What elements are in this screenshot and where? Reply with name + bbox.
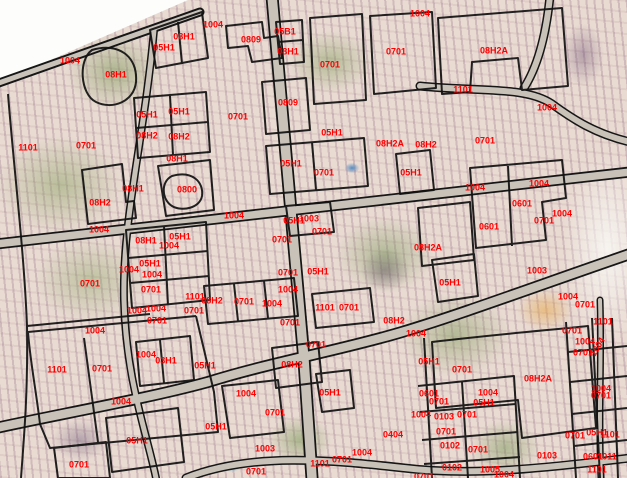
parcel-label: 1101 — [600, 431, 620, 440]
parcel-label: 0701 — [278, 269, 298, 278]
map-canvas[interactable]: 100408H105H108H105H105H108H208H211010701… — [0, 0, 627, 478]
parcel-label: 1004 — [494, 471, 514, 478]
parcel-label: 0701 — [312, 228, 332, 237]
parcel-label: 0102 — [442, 464, 462, 473]
parcel-label: 0701 — [147, 317, 167, 326]
parcel-label: 0809 — [278, 99, 298, 108]
parcel-label: 03H1 — [155, 357, 177, 366]
parcel-label: 1004 — [111, 398, 131, 407]
parcel-label: 05H1 — [126, 437, 148, 446]
parcel-label: 0701 — [429, 398, 449, 407]
parcel-label: 05H1 — [280, 160, 302, 169]
parcel-label: 08H1 — [105, 71, 127, 80]
parcel-label: 1004 — [203, 21, 223, 30]
parcel-label: 0102 — [440, 442, 460, 451]
parcel-label: 1004 — [410, 10, 430, 19]
parcel-label: 1101 — [47, 366, 67, 375]
parcel-label: 0701 — [565, 432, 585, 441]
parcel-label: 0701 — [320, 61, 340, 70]
parcel-label: 1004 — [142, 271, 162, 280]
parcel-label: 0103 — [537, 452, 557, 461]
parcel-label: 0701 — [306, 341, 326, 350]
parcel-label: 1004 — [60, 57, 80, 66]
parcel-label: 0701 — [265, 409, 285, 418]
parcel-label: 1011 — [597, 453, 617, 462]
parcel-label: 0701 — [272, 236, 292, 245]
parcel-label: 0601 — [479, 223, 499, 232]
parcel-label: 0701 — [332, 456, 352, 465]
parcel-label: 0701 — [69, 461, 89, 470]
parcel-label: 1004 — [224, 212, 244, 221]
parcel-label: 0701 — [76, 142, 96, 151]
parcel-label: 1004 — [478, 389, 498, 398]
parcel-label: 0701 — [80, 280, 100, 289]
parcel-label: 08H1 — [166, 155, 188, 164]
parcel-label: 0809 — [241, 36, 261, 45]
parcel-label: 0701 — [575, 301, 595, 310]
parcel-label: 1004 — [537, 104, 557, 113]
parcel-label: 05H1 — [418, 358, 440, 367]
parcel-label: 1004 — [552, 210, 572, 219]
parcel-label: 08H2A — [480, 47, 508, 56]
parcel-label: 05H1 — [136, 111, 158, 120]
parcel-label: 0103 — [434, 413, 454, 422]
parcel-label: 0701 — [228, 113, 248, 122]
parcel-label: 0701 — [475, 137, 495, 146]
parcel-label: 05H1 — [400, 169, 422, 178]
parcel-label: 08H2A — [376, 140, 404, 149]
parcel-label: 0701 — [414, 473, 434, 478]
parcel-label: 08H2A — [524, 375, 552, 384]
parcel-label: 1003 — [255, 445, 275, 454]
parcel-labels-layer: 100408H105H108H105H105H108H208H211010701… — [0, 0, 627, 478]
parcel-label: 1004 — [85, 327, 105, 336]
parcel-label: 0701 — [314, 169, 334, 178]
parcel-label: 1004 — [529, 180, 549, 189]
parcel-label: 05H1 — [439, 279, 461, 288]
parcel-label: 05H1 — [321, 129, 343, 138]
parcel-label: 1101 — [315, 304, 335, 313]
parcel-label: 1101 — [18, 144, 38, 153]
parcel-label: 05H1 — [473, 399, 495, 408]
parcel-label: 08H1 — [135, 237, 157, 246]
parcel-label: 0701 — [234, 298, 254, 307]
parcel-label: 0601 — [512, 200, 532, 209]
parcel-label: 1004 — [146, 305, 166, 314]
parcel-label: 1101 — [587, 466, 607, 475]
parcel-label: 0701 — [280, 319, 300, 328]
parcel-label: 08H2 — [383, 317, 405, 326]
parcel-label: 0701 — [339, 304, 359, 313]
parcel-label: 0701 — [591, 392, 611, 401]
parcel-label: 0701 — [562, 327, 582, 336]
parcel-label: 1004 — [236, 390, 256, 399]
parcel-label: 08H2 — [168, 133, 190, 142]
parcel-label: 0701 — [534, 217, 554, 226]
parcel-label: 08H1 — [122, 185, 144, 194]
parcel-label: 05H1 — [194, 362, 216, 371]
parcel-label: 0701 — [436, 428, 456, 437]
parcel-label: 0701 — [457, 411, 477, 420]
parcel-label: 08H2 — [89, 199, 111, 208]
parcel-label: 08H2 — [201, 297, 223, 306]
parcel-label: 0701 — [386, 48, 406, 57]
parcel-label: 1004 — [159, 242, 179, 251]
parcel-label: 05H1 — [319, 389, 341, 398]
parcel-label: 0701 — [184, 307, 204, 316]
parcel-label: 08H2 — [415, 141, 437, 150]
parcel-label: 1004 — [278, 286, 298, 295]
parcel-label: 1003 — [527, 267, 547, 276]
parcel-label: 0404 — [383, 431, 403, 440]
parcel-label: 0701 — [92, 365, 112, 374]
parcel-label: 08H1 — [173, 33, 195, 42]
parcel-label: 0701 — [468, 446, 488, 455]
parcel-label: 1004 — [352, 449, 372, 458]
parcel-label: 05H1 — [168, 108, 190, 117]
parcel-label: 08H2 — [281, 361, 303, 370]
parcel-label: 1004 — [262, 300, 282, 309]
parcel-label: 1004 — [465, 184, 485, 193]
parcel-label: 0701 — [246, 468, 266, 477]
parcel-label: 08H2A — [414, 244, 442, 253]
parcel-label: 1004 — [136, 351, 156, 360]
parcel-label: 0701 — [452, 366, 472, 375]
parcel-label: 0701 — [573, 349, 593, 358]
parcel-label: 1004 — [411, 411, 431, 420]
parcel-label: 0701 — [141, 286, 161, 295]
parcel-label: 08H2 — [136, 132, 158, 141]
parcel-label: 0800 — [177, 186, 197, 195]
parcel-label: 1004 — [406, 330, 426, 339]
parcel-label: 1004 — [127, 307, 147, 316]
parcel-label: 05H1 — [139, 260, 161, 269]
parcel-label: 1004 — [119, 266, 139, 275]
parcel-label: 1101 — [453, 86, 473, 95]
parcel-label: 05H1 — [205, 423, 227, 432]
parcel-label: 05H1 — [153, 44, 175, 53]
parcel-label: 05H1 — [307, 268, 329, 277]
parcel-label: 05B1 — [274, 28, 296, 37]
parcel-label: 1003 — [299, 215, 319, 224]
parcel-label: 1101 — [310, 460, 330, 469]
parcel-label: 1101 — [593, 318, 613, 327]
parcel-label: 08H1 — [277, 48, 299, 57]
parcel-label: 1004 — [89, 226, 109, 235]
